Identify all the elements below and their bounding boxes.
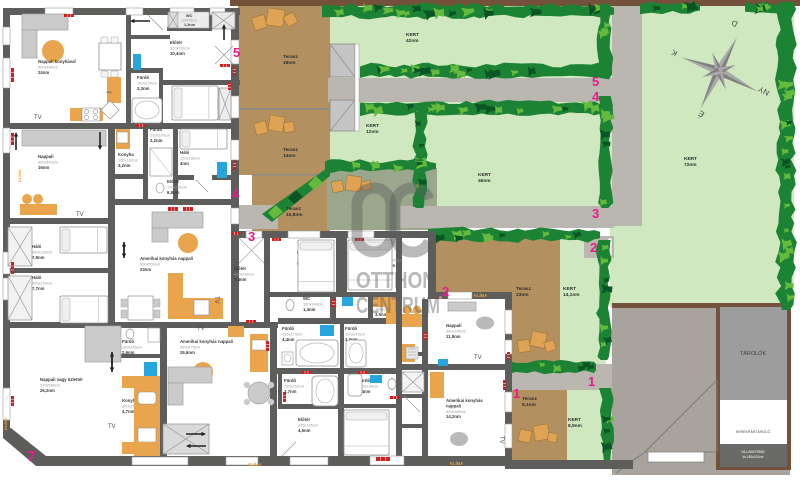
svg-text:3: 3 (592, 206, 599, 221)
svg-text:120x70cm: 120x70cm (181, 19, 197, 23)
svg-text:WC: WC (186, 14, 193, 18)
svg-text:2: 2 (590, 240, 597, 255)
svg-text:TÁROLÓK: TÁROLÓK (740, 350, 767, 357)
svg-text:KLÍMA: KLÍMA (474, 293, 487, 298)
svg-text:2: 2 (442, 284, 449, 299)
svg-text:3: 3 (248, 229, 255, 244)
svg-text:5: 5 (233, 45, 240, 60)
svg-text:TV: TV (76, 212, 84, 218)
svg-text:KLÍMA: KLÍMA (450, 461, 463, 466)
svg-text:TV: TV (197, 326, 205, 332)
svg-text:KERÉKPÁRTÁROLÓ: KERÉKPÁRTÁROLÓ (736, 429, 770, 434)
svg-text:5: 5 (592, 74, 599, 89)
svg-text:1,2nm: 1,2nm (184, 23, 196, 27)
svg-text:TV: TV (34, 115, 42, 121)
svg-text:KLÍMA: KLÍMA (3, 417, 8, 430)
svg-text:VILLANYÓRÁK: VILLANYÓRÁK (741, 449, 765, 454)
svg-text:7: 7 (27, 448, 35, 465)
svg-text:TV: TV (474, 355, 482, 361)
svg-text:TV: TV (108, 424, 116, 430)
svg-text:OTTHON: OTTHON (356, 267, 436, 293)
svg-text:KLÍMA: KLÍMA (248, 462, 261, 467)
svg-text:CENTRUM: CENTRUM (356, 292, 440, 318)
svg-text:TV: TV (498, 436, 504, 444)
svg-text:1: 1 (588, 374, 595, 389)
svg-text:4: 4 (232, 186, 240, 201)
svg-text:1: 1 (513, 386, 520, 401)
svg-text:4: 4 (592, 89, 600, 104)
svg-text:kb.160x120cm: kb.160x120cm (743, 455, 764, 459)
svg-text:KLÍMA: KLÍMA (17, 169, 22, 182)
svg-text:TV: TV (213, 296, 219, 304)
svg-text:pára: pára (106, 90, 112, 94)
